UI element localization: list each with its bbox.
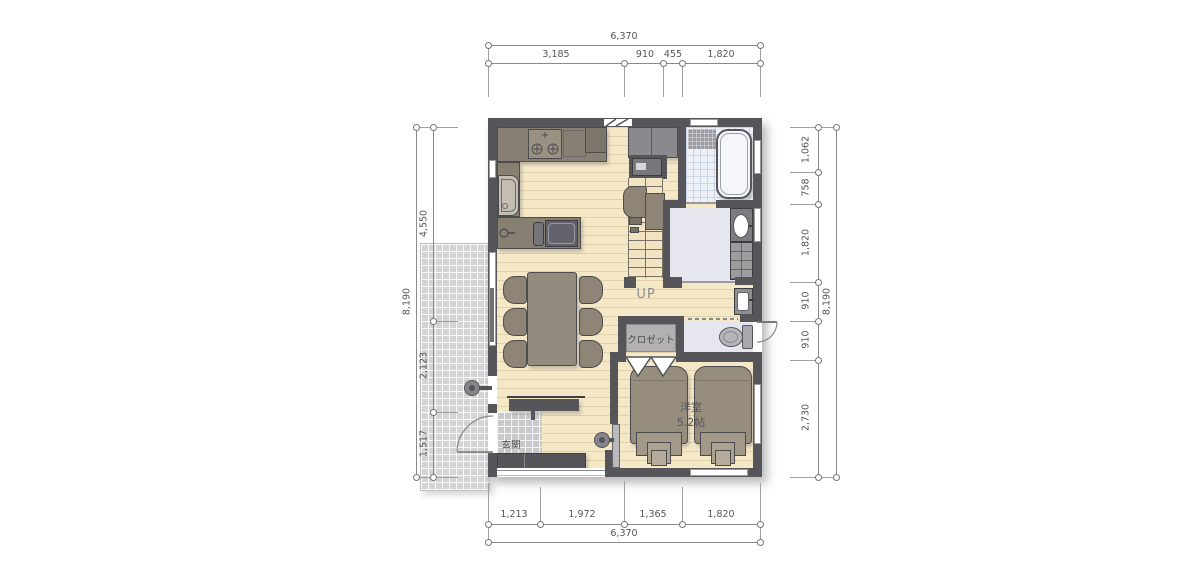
understair-item [629, 217, 642, 225]
dim-stub [790, 127, 836, 128]
dim-tick [815, 201, 822, 208]
dim-left-seg-2: 1,517 [419, 414, 430, 474]
island-basin-inner [548, 223, 575, 244]
dim-stub [488, 45, 489, 97]
dim-tick [621, 60, 628, 67]
dim-bottom-seg-1: 1,972 [552, 509, 612, 520]
dim-line-left-segments [433, 127, 434, 477]
kitchen-window [489, 160, 496, 178]
understair-table [645, 193, 665, 230]
bed-pillow-inner [651, 450, 667, 466]
bedroom-left-wall [610, 360, 618, 424]
bed-pillow-inner [715, 450, 731, 466]
terrace-door-knob-dot [469, 385, 475, 391]
dim-tick [485, 521, 492, 528]
bedroom-top-wall-right [676, 352, 762, 362]
dining-chair [579, 308, 603, 336]
dim-top-seg-0: 3,185 [526, 49, 586, 60]
dim-stub [624, 63, 625, 97]
dim-line-bottom-total [488, 542, 760, 543]
terrace-door-leaf [478, 386, 492, 390]
dim-left-total: 8,190 [402, 272, 413, 332]
entrance-bottom-window-line [497, 470, 605, 471]
cooktop [528, 129, 562, 159]
dim-tick [757, 539, 764, 546]
bathroom-door-track [686, 202, 716, 204]
dim-right-seg-2: 1,820 [801, 213, 812, 273]
dim-tick [430, 318, 437, 325]
dim-line-top-total [488, 45, 760, 46]
dim-stub [790, 477, 836, 478]
dim-stub [663, 63, 664, 97]
kitchen-back-door [604, 119, 632, 126]
terrace-door-opening [488, 376, 497, 404]
dim-stub [760, 483, 761, 542]
stairs-up-label: UP [631, 287, 661, 302]
dim-tick [815, 169, 822, 176]
entrance-bottom-window-line-2 [497, 475, 605, 476]
bedroom-name-label: 洋室 [661, 399, 721, 415]
dim-line-right-segments [818, 127, 819, 477]
dim-tick [621, 521, 628, 528]
closet-label: クロゼット [621, 332, 681, 346]
dim-right-seg-4: 910 [801, 310, 812, 370]
washroom-bottom-wall [735, 277, 753, 285]
dim-stub [760, 45, 761, 97]
living-window-sash [490, 288, 494, 342]
vanity-bowl [733, 214, 749, 238]
dim-right-total: 8,190 [822, 272, 833, 332]
bed-fold-line [633, 380, 685, 381]
toilet-tank [742, 325, 753, 349]
bed-fold-line [697, 380, 749, 381]
dim-tick [679, 60, 686, 67]
shoe-cabinet [509, 399, 579, 411]
entrance-tile-floor [497, 412, 542, 458]
entrance-label: 玄関 [489, 437, 533, 451]
kitchen-wall-cabinet [585, 127, 607, 153]
bathroom-mat [688, 129, 716, 149]
floor-plan-canvas: UP クロゼット 洋室 5.2帖 玄関 6,370 3,185 910 455 … [0, 0, 1200, 569]
dim-bottom-seg-2: 1,365 [623, 509, 683, 520]
dim-tick [757, 42, 764, 49]
washroom-side-window [754, 208, 761, 242]
refrigerator [628, 127, 678, 158]
bathroom-left-wall [678, 127, 686, 200]
dim-tick [430, 474, 437, 481]
bedroom-door-knob-dot [599, 437, 605, 443]
dining-table [527, 272, 577, 366]
dim-tick [815, 124, 822, 131]
dim-stub [416, 127, 458, 128]
dim-tick [815, 357, 822, 364]
shoe-shelf-line [507, 396, 585, 398]
corridor-basin-bowl [737, 292, 749, 311]
kitchen-sink-basin [501, 179, 516, 212]
dining-chair [503, 308, 527, 336]
dim-bottom-total: 6,370 [594, 528, 654, 539]
dim-tick [833, 474, 840, 481]
bathroom-top-window [690, 119, 718, 126]
dim-tick [485, 539, 492, 546]
dining-chair [579, 340, 603, 368]
stair-right-stub [663, 277, 682, 288]
dim-stub [682, 63, 683, 97]
dim-tick [757, 521, 764, 528]
toilet-door-opening [753, 322, 762, 352]
island-fixture [533, 222, 544, 246]
toilet-bowl-inner [723, 331, 738, 343]
microwave-display [636, 163, 646, 170]
refrigerator-divider [651, 128, 652, 156]
terrace-tiles [420, 243, 490, 491]
bedroom-size-label: 5.2帖 [661, 414, 721, 430]
entrance-hook [531, 411, 535, 420]
dim-tick [430, 409, 437, 416]
bedroom-side-window [754, 384, 761, 444]
dim-tick [413, 124, 420, 131]
toilet-top-stub [740, 314, 753, 322]
dim-right-seg-5: 2,730 [801, 388, 812, 448]
dim-bottom-seg-0: 1,213 [484, 509, 544, 520]
dim-right-seg-1: 758 [801, 158, 812, 218]
washing-machine [730, 242, 753, 280]
dim-line-right-total [836, 127, 837, 477]
dim-tick [413, 474, 420, 481]
counter-divider [563, 130, 586, 157]
dim-tick [485, 60, 492, 67]
dim-tick [757, 60, 764, 67]
bathroom-bottom-wall-2 [716, 200, 753, 208]
dim-left-seg-0: 4,550 [419, 194, 430, 254]
dining-chair [503, 340, 527, 368]
bathroom-side-window [754, 140, 761, 174]
dim-stub [416, 477, 458, 478]
dim-tick [430, 124, 437, 131]
closet-top-wall [618, 316, 684, 324]
dining-chair [579, 276, 603, 304]
dim-top-seg-3: 1,820 [691, 49, 751, 60]
dim-left-seg-1: 2,123 [419, 336, 430, 396]
dim-bottom-seg-3: 1,820 [691, 509, 751, 520]
dim-tick [485, 42, 492, 49]
dim-top-seg-2: 455 [655, 49, 691, 60]
dim-tick [815, 474, 822, 481]
understair-chair [623, 186, 647, 218]
washroom-left-wall [663, 208, 670, 285]
bedroom-door-leaf [612, 424, 620, 468]
dim-line-left-total [416, 127, 417, 477]
understair-item-2 [630, 227, 639, 233]
bathroom-bottom-wall [663, 200, 686, 208]
dim-tick [537, 521, 544, 528]
dim-top-total: 6,370 [594, 31, 654, 42]
entrance-cabinet-divider [524, 454, 525, 469]
dim-tick [833, 124, 840, 131]
dim-tick [679, 521, 686, 528]
bedroom-bottom-window [690, 469, 748, 476]
dining-chair [503, 276, 527, 304]
dim-tick [660, 60, 667, 67]
bathtub-inner [720, 133, 748, 195]
